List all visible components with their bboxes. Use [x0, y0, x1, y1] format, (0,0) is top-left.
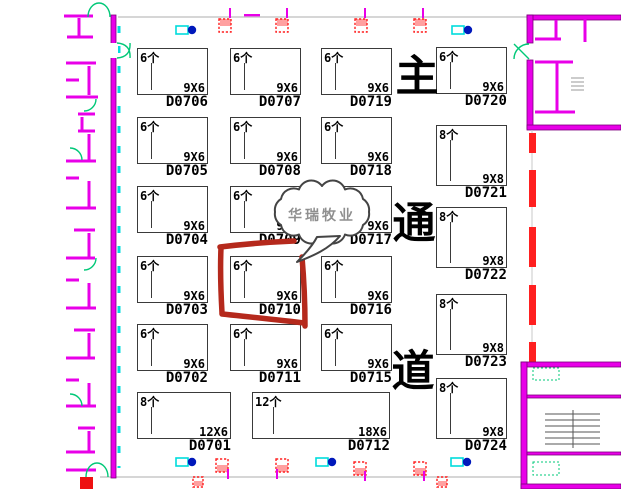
booth-highlight-annotation[interactable] [220, 241, 305, 326]
callout-company-name: 华瑞牧业 [276, 205, 368, 225]
floor-plan-canvas: 6个 9X6 D0706 6个 9X6 D0707 6个 9X6 D0719 6… [0, 0, 621, 489]
annotation-layer [0, 0, 621, 489]
